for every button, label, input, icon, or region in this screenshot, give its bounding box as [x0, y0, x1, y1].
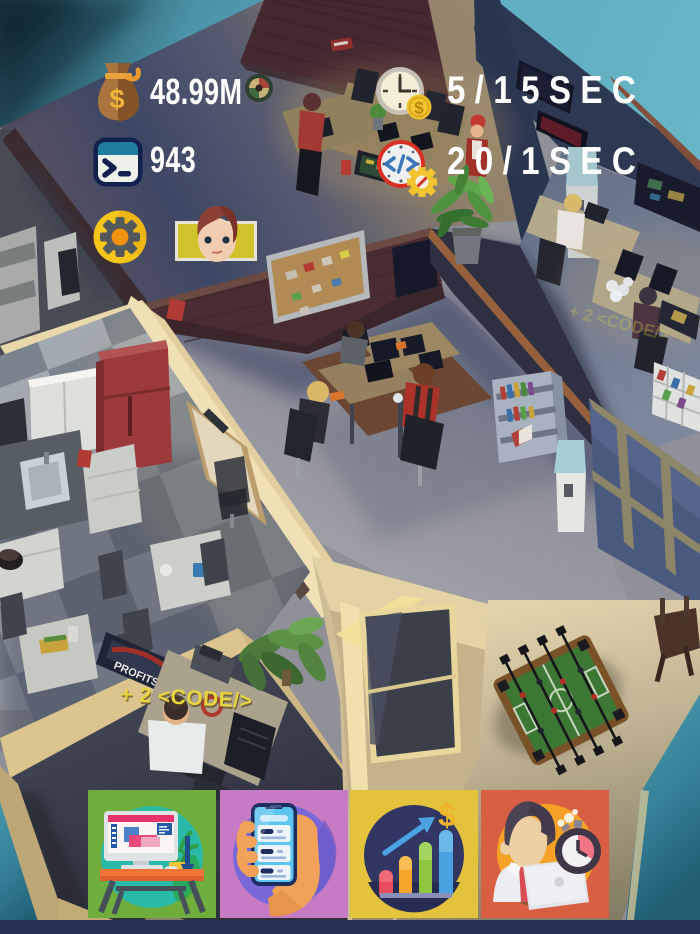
svg-text:$: $ [414, 99, 424, 118]
svg-text:$: $ [109, 84, 124, 114]
svg-text:$: $ [438, 797, 456, 833]
